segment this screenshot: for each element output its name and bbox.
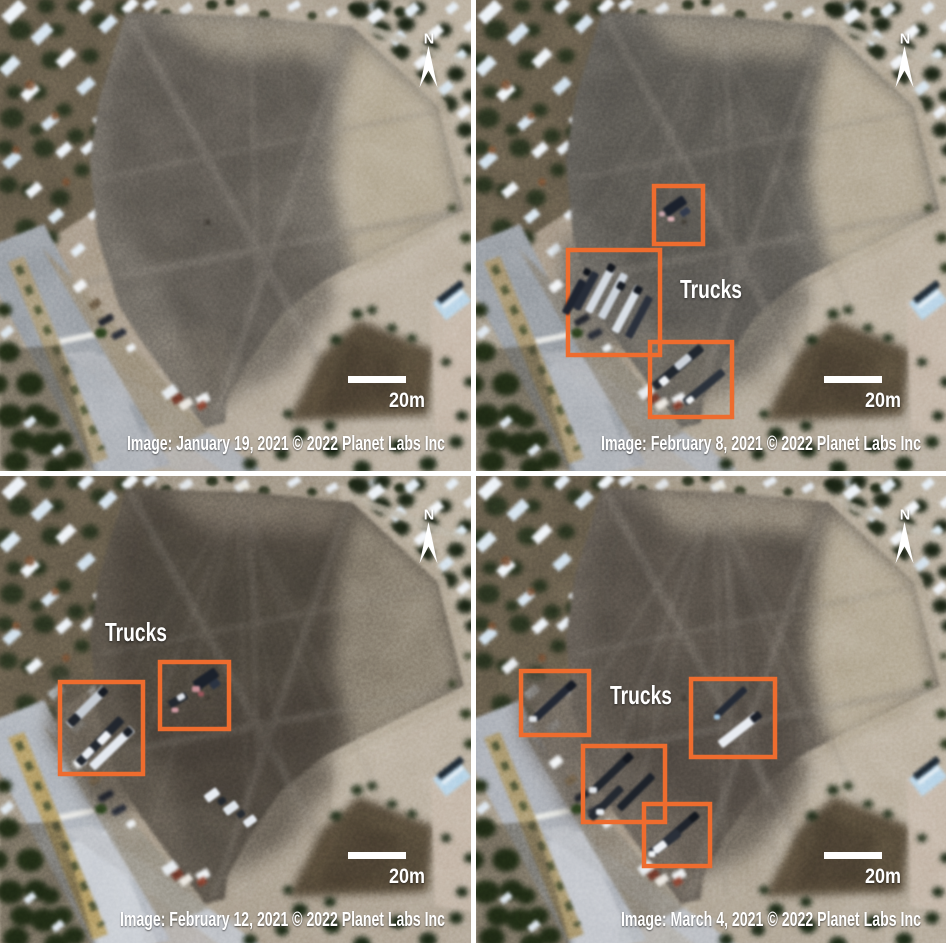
svg-text:Image: February 8, 2021 © 2022: Image: February 8, 2021 © 2022 Planet La… bbox=[601, 432, 921, 455]
svg-text:Trucks: Trucks bbox=[105, 617, 167, 647]
svg-text:N: N bbox=[899, 507, 909, 523]
svg-text:Image: January 19, 2021 © 2022: Image: January 19, 2021 © 2022 Planet La… bbox=[127, 432, 445, 455]
svg-text:20m: 20m bbox=[389, 389, 425, 412]
svg-text:N: N bbox=[899, 32, 909, 48]
svg-text:N: N bbox=[424, 32, 434, 48]
svg-text:20m: 20m bbox=[865, 389, 901, 412]
svg-text:20m: 20m bbox=[865, 865, 901, 888]
svg-text:Trucks: Trucks bbox=[680, 274, 742, 304]
svg-text:Image: February 12, 2021 © 202: Image: February 12, 2021 © 2022 Planet L… bbox=[120, 908, 445, 931]
svg-text:Trucks: Trucks bbox=[610, 680, 672, 710]
svg-text:Image: March 4, 2021 © 2022 Pl: Image: March 4, 2021 © 2022 Planet Labs … bbox=[621, 908, 921, 931]
svg-text:N: N bbox=[424, 507, 434, 523]
svg-text:20m: 20m bbox=[389, 865, 425, 888]
